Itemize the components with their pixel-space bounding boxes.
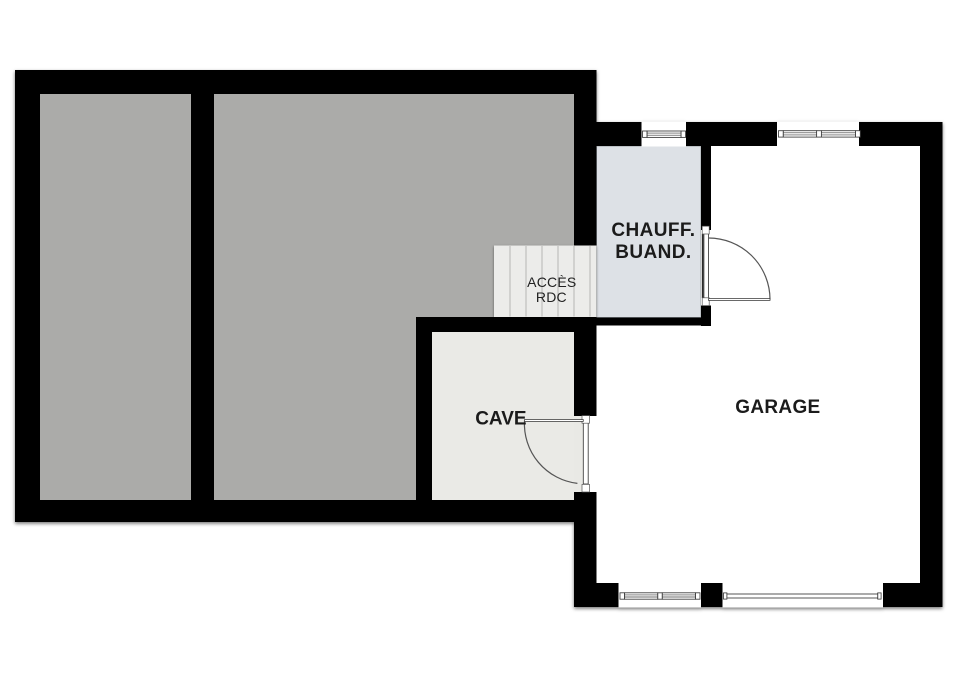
svg-text:RDC: RDC [536, 289, 567, 305]
svg-text:GARAGE: GARAGE [735, 397, 820, 418]
svg-text:CAVE: CAVE [475, 409, 526, 430]
svg-text:CHAUFF.: CHAUFF. [611, 220, 695, 241]
svg-text:ACCÈS: ACCÈS [527, 274, 576, 290]
svg-text:BUAND.: BUAND. [615, 242, 691, 263]
